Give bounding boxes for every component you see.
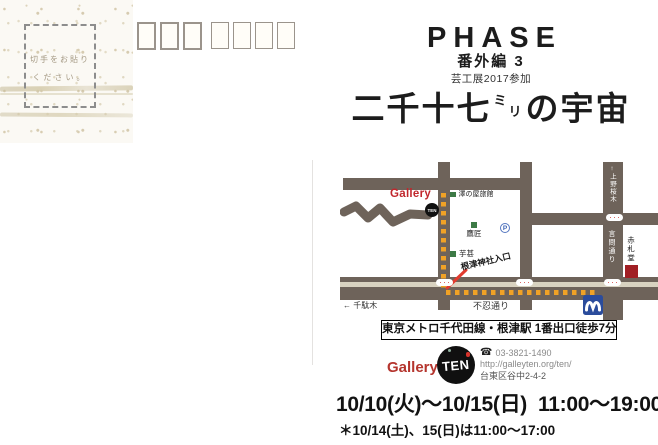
fold-line xyxy=(312,160,313,365)
landmark-takajo: 鷹匠 xyxy=(462,222,486,238)
participation-note: 芸工展2017参加 xyxy=(330,74,652,85)
phone-row: ☎ 03-3821-1490 xyxy=(480,348,552,358)
edition-subtitle: 番外編 3 xyxy=(330,54,652,69)
parking-icon: P xyxy=(500,223,510,233)
landmark-marker-icon xyxy=(450,192,456,198)
ten-logo-accent-mark xyxy=(448,349,451,352)
stamp-instruction-line1: 切手をお貼り xyxy=(26,54,94,65)
ten-logo-red-dot xyxy=(466,352,471,357)
traffic-light-icon xyxy=(436,279,453,286)
postal-code-box xyxy=(277,22,295,49)
metro-m-glyph xyxy=(583,295,603,315)
ten-logo-text: TEN xyxy=(442,356,471,373)
stamp-instruction-line2: ください。 xyxy=(26,72,94,83)
phone-icon: ☎ xyxy=(480,348,492,358)
traffic-light-icon xyxy=(606,214,623,221)
ueno-sakuragi-label: ↑上野桜木 xyxy=(608,165,615,203)
website-url: http://galleyten.org/ten/ xyxy=(480,360,572,369)
access-map: Gallery TEN 澤の屋旅館 鷹匠 P 芋甚 根津神社入口 ← 千駄木 不… xyxy=(340,162,658,320)
exhibition-hours-note: ＊10/14(土)、15(日)は11:00〜17:00 xyxy=(339,419,555,439)
exhibition-dates: 10/10(火)〜10/15(日) 11:00〜19:00 xyxy=(336,393,658,416)
station-access-box: 東京メトロ千代田線・根津駅 1番出口徒歩7分 xyxy=(381,320,617,340)
main-title-small-kana-bottom: リ xyxy=(509,105,524,118)
walking-route-vertical xyxy=(441,193,446,291)
postal-code-box xyxy=(255,22,273,49)
postal-code-row xyxy=(137,22,299,50)
landmark-imojin: 芋甚 xyxy=(450,250,474,258)
walking-route-horizontal xyxy=(446,290,596,295)
main-title: 二千十七ミリの宇宙 xyxy=(330,92,652,125)
landmark-label: 鷹匠 xyxy=(467,230,482,238)
kototoi-dori-label: 言問通り xyxy=(608,230,615,264)
landmark-marker-icon xyxy=(471,222,477,228)
landmark-marker-icon xyxy=(450,251,456,257)
akafudado-label: 赤札堂 xyxy=(627,236,635,263)
postal-code-box xyxy=(183,22,202,50)
postal-code-box xyxy=(137,22,156,50)
phone-number: 03-3821-1490 xyxy=(495,349,551,358)
shinobazu-dori-label: 不忍通り xyxy=(473,302,509,311)
gallery-address: 台東区谷中2-4-2 xyxy=(480,372,546,381)
exhibition-title: PHASE xyxy=(330,24,652,53)
gallery-ten-map-logo: TEN xyxy=(425,203,439,217)
gallery-map-label: Gallery xyxy=(390,189,431,201)
landmark-sawanoya: 澤の屋旅館 xyxy=(450,191,494,198)
zigzag-street xyxy=(344,206,428,222)
texture-streak xyxy=(0,113,133,118)
gallery-wordmark: Gallery xyxy=(387,359,438,376)
postal-code-box xyxy=(233,22,251,49)
traffic-light-icon xyxy=(604,279,621,286)
postal-code-box xyxy=(160,22,179,50)
sendagi-direction-label: ← 千駄木 xyxy=(343,302,377,310)
main-title-post: の宇宙 xyxy=(526,90,631,127)
gallery-ten-logo: TEN xyxy=(437,346,475,384)
traffic-light-icon xyxy=(516,279,533,286)
postal-code-box xyxy=(211,22,229,49)
landmark-label: 芋甚 xyxy=(459,250,474,258)
akafudado-marker xyxy=(625,265,638,278)
main-title-small-kana-top: ミ xyxy=(493,94,508,107)
postcard-back: 切手をお貼り ください。 PHASE 番外編 3 芸工展2017参加 二千十七ミ… xyxy=(0,0,658,445)
landmark-label: 澤の屋旅館 xyxy=(459,191,494,198)
stamp-box: 切手をお貼り ください。 xyxy=(24,24,96,108)
tokyo-metro-icon xyxy=(583,295,603,315)
main-title-pre: 二千十七 xyxy=(351,90,491,127)
